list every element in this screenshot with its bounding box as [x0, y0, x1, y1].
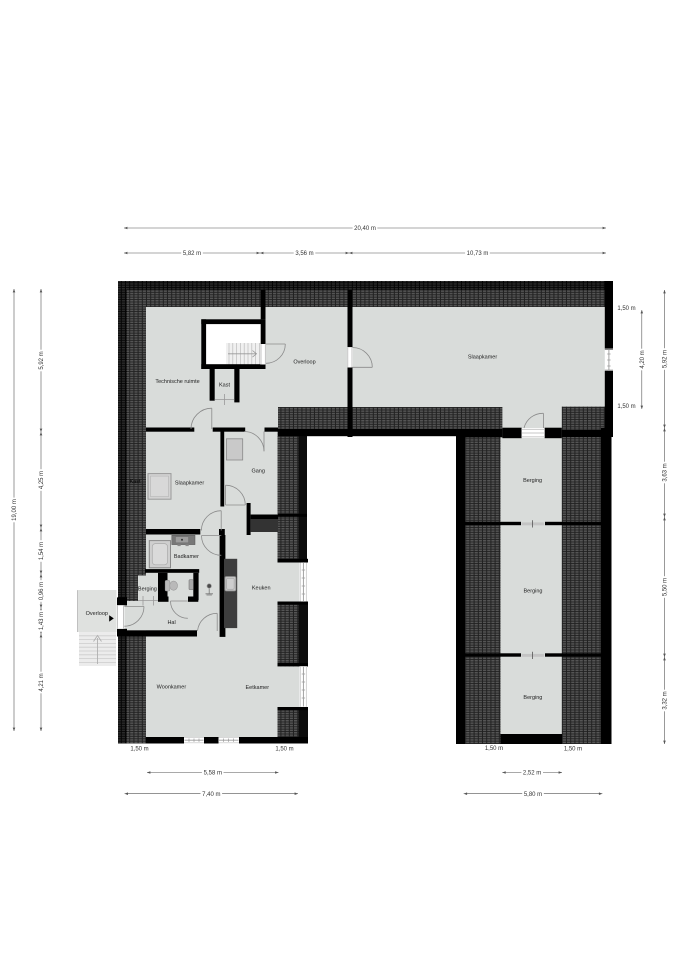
- svg-text:1,50 m: 1,50 m: [275, 747, 293, 753]
- svg-text:Slaapkamer: Slaapkamer: [468, 355, 498, 361]
- svg-text:3,63 m: 3,63 m: [663, 463, 669, 481]
- svg-text:1,50 m: 1,50 m: [485, 746, 503, 752]
- svg-text:Berging: Berging: [138, 586, 157, 592]
- svg-text:1,50 m: 1,50 m: [617, 404, 635, 410]
- svg-text:Overloop: Overloop: [86, 611, 108, 617]
- svg-text:20,40 m: 20,40 m: [354, 226, 376, 232]
- svg-text:4,21 m: 4,21 m: [39, 673, 45, 691]
- svg-text:1,43 m: 1,43 m: [39, 612, 45, 630]
- svg-text:Hal: Hal: [167, 620, 175, 626]
- svg-text:5,92 m: 5,92 m: [39, 351, 45, 369]
- svg-text:5,92 m: 5,92 m: [663, 350, 669, 368]
- svg-text:7,40 m: 7,40 m: [202, 792, 220, 798]
- svg-text:Badkamer: Badkamer: [174, 554, 199, 560]
- svg-text:1,50 m: 1,50 m: [564, 747, 582, 753]
- svg-text:Slaapkamer: Slaapkamer: [175, 481, 205, 487]
- svg-text:Berging: Berging: [523, 478, 542, 484]
- svg-text:3,32 m: 3,32 m: [663, 691, 669, 709]
- svg-text:Overloop: Overloop: [293, 360, 315, 366]
- svg-text:0,96 m: 0,96 m: [39, 582, 45, 600]
- svg-text:Kast: Kast: [129, 479, 140, 485]
- svg-text:5,58 m: 5,58 m: [204, 771, 222, 777]
- svg-text:3,56 m: 3,56 m: [295, 251, 313, 257]
- svg-text:2,52 m: 2,52 m: [523, 771, 541, 777]
- svg-text:Gang: Gang: [251, 469, 264, 475]
- svg-text:Berging: Berging: [524, 589, 543, 595]
- svg-text:1,54 m: 1,54 m: [39, 542, 45, 560]
- svg-text:Keuken: Keuken: [252, 586, 271, 592]
- svg-text:1,50 m: 1,50 m: [617, 306, 635, 312]
- svg-text:1,50 m: 1,50 m: [130, 747, 148, 753]
- svg-text:Woonkamer: Woonkamer: [157, 685, 187, 691]
- svg-text:5,82 m: 5,82 m: [183, 251, 201, 257]
- svg-text:4,25 m: 4,25 m: [39, 471, 45, 489]
- svg-text:Kast: Kast: [219, 383, 230, 389]
- svg-text:Berging: Berging: [523, 695, 542, 701]
- svg-text:10,73 m: 10,73 m: [467, 251, 489, 257]
- svg-text:5,50 m: 5,50 m: [663, 578, 669, 596]
- svg-text:4,20 m: 4,20 m: [640, 350, 646, 368]
- svg-text:Technische ruimte: Technische ruimte: [155, 379, 199, 385]
- svg-text:19,00 m: 19,00 m: [12, 499, 18, 521]
- svg-text:Eetkamer: Eetkamer: [246, 685, 270, 691]
- svg-text:5,80 m: 5,80 m: [524, 792, 542, 798]
